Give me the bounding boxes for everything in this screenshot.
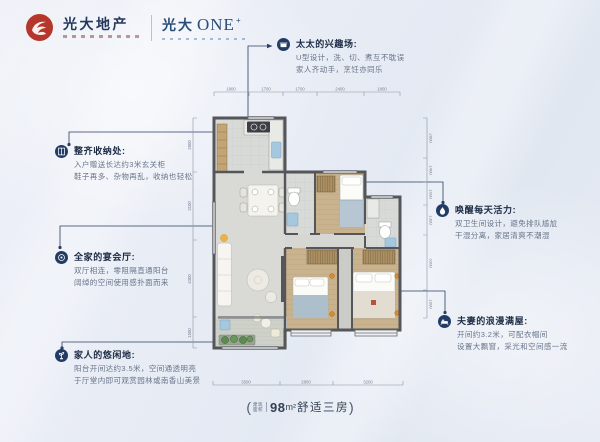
- dining-chair: [240, 188, 247, 197]
- brand-one-en: ONE: [197, 15, 235, 35]
- note-storage: 整齐收纳处: 入户赠送长达约3米玄关柜 鞋子再多、杂物再乱，收纳也轻松: [55, 146, 193, 181]
- brand-seal-icon: [26, 14, 53, 41]
- kitchen-pot-icon: [277, 38, 290, 51]
- pillow: [356, 274, 372, 282]
- note-line: 设置大飘窗，采光和空间感一流: [457, 343, 568, 351]
- note-line: 开间约3.2米，可配衣帽间: [457, 331, 568, 339]
- plant: [230, 335, 237, 342]
- dimension-label: 3500: [241, 380, 251, 385]
- footer-caption: ( 建筑 面积 98 m² 舒适三房 ): [0, 399, 600, 415]
- note-title: 家人的悠闲地:: [74, 350, 200, 360]
- layout-description: 舒适三房: [297, 399, 349, 415]
- plant: [221, 336, 228, 343]
- dimension-label: 1700: [295, 87, 305, 92]
- note-title: 唤醒每天活力:: [455, 205, 558, 215]
- floor-plan: 1800 1700 1700 2400 1800 3500 2800 3200 …: [188, 84, 432, 404]
- bed-icon: [438, 315, 451, 328]
- brand-name: 光大地产: [63, 17, 141, 32]
- note-line: 双卫生间设计，避免排队尴尬: [455, 220, 558, 228]
- pillow: [295, 279, 309, 286]
- plant: [247, 336, 253, 342]
- brand-one-tagline: [162, 38, 248, 41]
- bath-counter: [367, 199, 379, 218]
- bedside-lamp: [330, 274, 335, 279]
- area-value: 98: [270, 400, 285, 415]
- dimension-label: 1800: [226, 87, 236, 92]
- note-line: 入户赠送长达约3米玄关柜: [74, 161, 193, 169]
- note-line: 双厅相连，零阻隔直通阳台: [74, 267, 169, 275]
- note-line: 鞋子再多、杂物再乱，收纳也轻松: [74, 173, 193, 181]
- dimension-label: 1600: [429, 299, 433, 309]
- bath-sink: [287, 213, 298, 226]
- dimension-label: 2800: [301, 380, 311, 385]
- dining-plate-icon: [55, 251, 68, 264]
- dimension-label: 2800: [188, 140, 192, 150]
- area-label: 建筑 面积: [253, 402, 267, 412]
- brand-one-logo: 光大 ONE +: [162, 15, 248, 35]
- note-line: 阔绰的空间使用感扑面而来: [74, 279, 169, 287]
- note-bathroom: 唤醒每天活力: 双卫生间设计，避免排队尴尬 干湿分离，家居清爽不潮湿: [436, 205, 558, 240]
- bath-sink: [385, 238, 396, 247]
- closet-floor: [338, 248, 352, 330]
- brand-header: 光大地产 光大 ONE +: [26, 14, 248, 41]
- bed-runner: [371, 300, 376, 305]
- dimension-label: 2400: [335, 87, 345, 92]
- dimension-label: 1400: [429, 165, 433, 175]
- plant: [239, 336, 246, 343]
- note-line: U型设计，洗、切、煮互不耽误: [296, 54, 405, 62]
- blanket: [340, 200, 363, 227]
- note-title: 整齐收纳处:: [74, 146, 193, 156]
- note-line: 家人齐动手，烹饪亦同乐: [296, 66, 405, 74]
- pet-mat: [220, 320, 230, 330]
- wardrobe: [363, 250, 395, 264]
- side-table: [266, 292, 277, 303]
- dimension-label: 2800: [429, 133, 433, 143]
- note-kitchen: 太太的兴趣场: U型设计，洗、切、煮互不耽误 家人齐动手，烹饪亦同乐: [277, 39, 405, 74]
- brand-divider: [151, 15, 152, 41]
- balcony-table: [261, 318, 271, 328]
- note-title: 太太的兴趣场:: [296, 39, 405, 49]
- pillow: [375, 274, 391, 282]
- note-title: 夫妻的浪漫满屋:: [457, 316, 568, 326]
- balcony-chair: [253, 314, 261, 322]
- footer-paren-open: (: [246, 399, 251, 415]
- pillow: [310, 279, 324, 286]
- toilet: [289, 192, 300, 206]
- floorplan-poster: 光大地产 光大 ONE +: [0, 0, 600, 442]
- cabinet-icon: [55, 145, 68, 158]
- dimension-label: 3100: [188, 201, 192, 211]
- note-line: 于厅堂内即可观赏园林或南香山美景: [74, 377, 200, 385]
- blanket: [293, 295, 328, 318]
- stove: [247, 122, 270, 133]
- brand-one-cn: 光大: [162, 15, 194, 35]
- hallway-floor: [285, 234, 365, 248]
- wardrobe: [317, 176, 335, 192]
- dimension-label: 1500: [188, 328, 192, 338]
- plant-icon: [55, 349, 68, 362]
- wardrobe: [307, 250, 338, 264]
- pillow: [342, 177, 361, 185]
- note-dining: 全家的宴会厅: 双厅相连，零阻隔直通阳台 阔绰的空间使用感扑面而来: [55, 252, 169, 287]
- shower-drop-icon: [436, 204, 449, 217]
- dining-table: [248, 185, 278, 216]
- bedside-lamp: [330, 312, 335, 317]
- tv-wall: [281, 256, 284, 302]
- note-master-bedroom: 夫妻的浪漫满屋: 开间约3.2米，可配衣帽间 设置大飘窗，采光和空间感一流: [438, 316, 568, 351]
- dimension-label: 4300: [188, 274, 192, 284]
- floor-lamp: [221, 235, 228, 242]
- kitchen-sink: [272, 142, 282, 158]
- dimension-label: 1700: [261, 87, 271, 92]
- dimension-label: 1500: [429, 189, 433, 199]
- dining-chair: [240, 203, 247, 212]
- brand-tagline: [63, 35, 141, 38]
- brand-one-plus: +: [236, 16, 241, 25]
- dimension-label: 3200: [363, 380, 373, 385]
- dimension-label: 1800: [377, 87, 387, 92]
- toilet: [380, 226, 391, 239]
- area-unit: m²: [285, 402, 296, 412]
- sofa: [218, 243, 232, 306]
- balcony-chair: [271, 329, 280, 337]
- note-line: 干湿分离，家居清爽不潮湿: [455, 232, 558, 240]
- note-line: 阳台开间达约3.5米，空间通透明亮: [74, 365, 200, 373]
- note-title: 全家的宴会厅:: [74, 252, 169, 262]
- note-balcony: 家人的悠闲地: 阳台开间达约3.5米，空间通透明亮 于厅堂内即可观赏园林或南香山…: [55, 350, 200, 385]
- footer-paren-close: ): [349, 399, 354, 415]
- dimension-label: 1300: [429, 215, 433, 225]
- coffee-table: [247, 269, 269, 291]
- area-label-bottom: 面积: [253, 407, 263, 412]
- dimension-label: 3300: [429, 258, 433, 268]
